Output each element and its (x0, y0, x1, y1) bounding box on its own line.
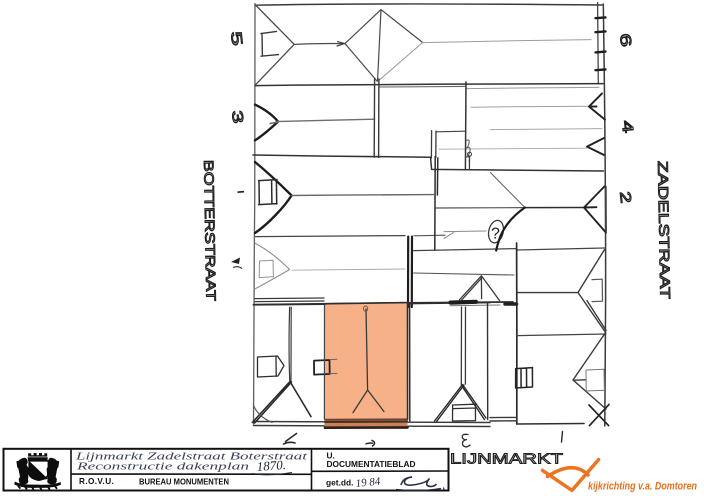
svg-text:DOCUMENTATIEBLAD: DOCUMENTATIEBLAD (327, 459, 416, 469)
svg-text:3: 3 (228, 110, 246, 125)
svg-text:4: 4 (618, 120, 636, 135)
svg-text:Reconstructie dakenplan: Reconstructie dakenplan (75, 462, 249, 473)
svg-text:get.dd.: get.dd. (326, 478, 353, 488)
svg-text:ZADELSTRAAT: ZADELSTRAAT (655, 161, 673, 300)
svg-text:2: 2 (617, 191, 635, 204)
svg-text:BOTTERSTRAAT: BOTTERSTRAAT (201, 160, 218, 301)
svg-text:1870.: 1870. (256, 457, 286, 474)
svg-text:6: 6 (616, 33, 634, 48)
svg-text:BUREAU MONUMENTEN: BUREAU MONUMENTEN (139, 477, 229, 487)
svg-text:5: 5 (227, 31, 245, 47)
svg-text:kijkrichting v.a. Domtoren: kijkrichting v.a. Domtoren (588, 481, 697, 493)
svg-text:LIJNMARKT: LIJNMARKT (450, 452, 563, 468)
svg-text:?: ? (491, 226, 500, 243)
svg-text:R.O.V.U.: R.O.V.U. (79, 477, 114, 486)
